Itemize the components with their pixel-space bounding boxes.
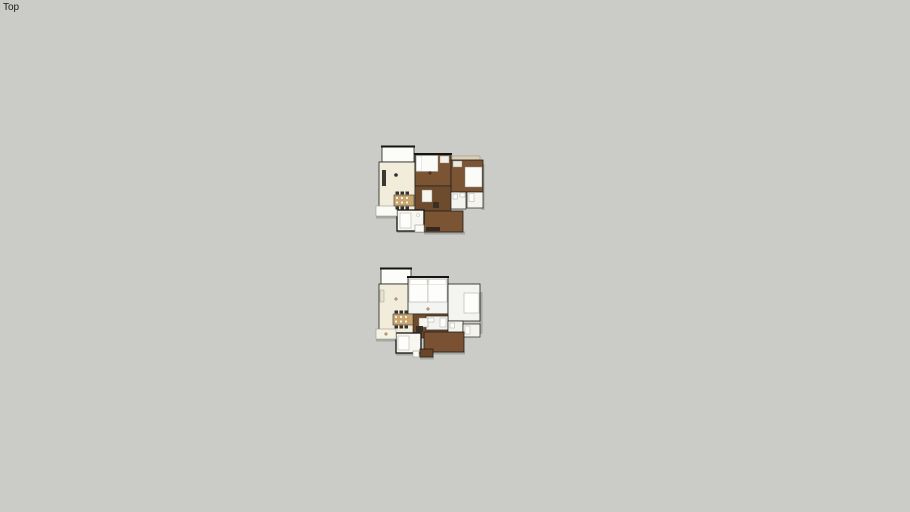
dresser[interactable] <box>453 161 462 167</box>
plate[interactable] <box>406 197 408 199</box>
chair[interactable] <box>400 311 404 314</box>
bed[interactable] <box>465 167 482 187</box>
chair[interactable] <box>405 311 409 314</box>
viewport-label: Top <box>3 2 19 13</box>
plate[interactable] <box>400 320 402 322</box>
plate[interactable] <box>396 201 398 203</box>
shower[interactable] <box>465 326 470 334</box>
balcony[interactable] <box>381 269 411 284</box>
chair[interactable] <box>396 207 400 210</box>
toilet[interactable] <box>453 194 458 199</box>
pillow[interactable] <box>410 280 427 285</box>
wall[interactable] <box>380 268 412 270</box>
counter[interactable] <box>426 227 440 231</box>
bathtub[interactable] <box>398 336 409 350</box>
dresser[interactable] <box>440 156 449 163</box>
plate[interactable] <box>395 316 397 318</box>
sink[interactable] <box>428 318 434 322</box>
floor-plan-upper[interactable] <box>376 144 488 234</box>
appliance[interactable] <box>415 225 424 232</box>
balcony[interactable] <box>382 147 414 162</box>
wall[interactable] <box>381 146 415 148</box>
shower[interactable] <box>440 318 446 327</box>
sink[interactable] <box>460 193 465 197</box>
chair[interactable] <box>400 326 404 329</box>
pillow[interactable] <box>429 280 446 285</box>
bed[interactable] <box>464 293 479 313</box>
dining-table[interactable] <box>394 195 414 206</box>
plate[interactable] <box>395 320 397 322</box>
chair[interactable] <box>406 207 410 210</box>
rug[interactable] <box>433 202 439 208</box>
chair[interactable] <box>396 192 400 195</box>
cabinet[interactable] <box>422 190 432 202</box>
plate[interactable] <box>401 201 403 203</box>
chair[interactable] <box>401 207 405 210</box>
wall[interactable] <box>414 153 452 155</box>
appliance[interactable] <box>413 351 419 357</box>
sink[interactable] <box>416 213 419 216</box>
plant[interactable] <box>394 173 398 177</box>
shower[interactable] <box>469 194 474 202</box>
wardrobe[interactable] <box>380 290 384 302</box>
chair[interactable] <box>395 326 399 329</box>
plate[interactable] <box>406 201 408 203</box>
viewport-canvas[interactable]: Top <box>0 0 910 512</box>
plate[interactable] <box>405 316 407 318</box>
dining-table[interactable] <box>393 314 413 325</box>
rug[interactable] <box>416 326 423 332</box>
bathtub[interactable] <box>400 213 411 228</box>
plate[interactable] <box>401 197 403 199</box>
plate[interactable] <box>396 197 398 199</box>
toilet[interactable] <box>450 323 455 328</box>
chair[interactable] <box>395 311 399 314</box>
chair[interactable] <box>405 326 409 329</box>
wall[interactable] <box>407 276 449 278</box>
plate[interactable] <box>400 316 402 318</box>
floor-plan-lower[interactable] <box>376 266 488 360</box>
plate[interactable] <box>405 320 407 322</box>
pillow[interactable] <box>417 156 422 171</box>
sofa[interactable] <box>382 170 386 186</box>
cabinet[interactable] <box>419 318 428 327</box>
counter[interactable] <box>420 349 433 357</box>
chair[interactable] <box>401 192 405 195</box>
entry-step[interactable] <box>376 206 397 216</box>
chair[interactable] <box>406 192 410 195</box>
